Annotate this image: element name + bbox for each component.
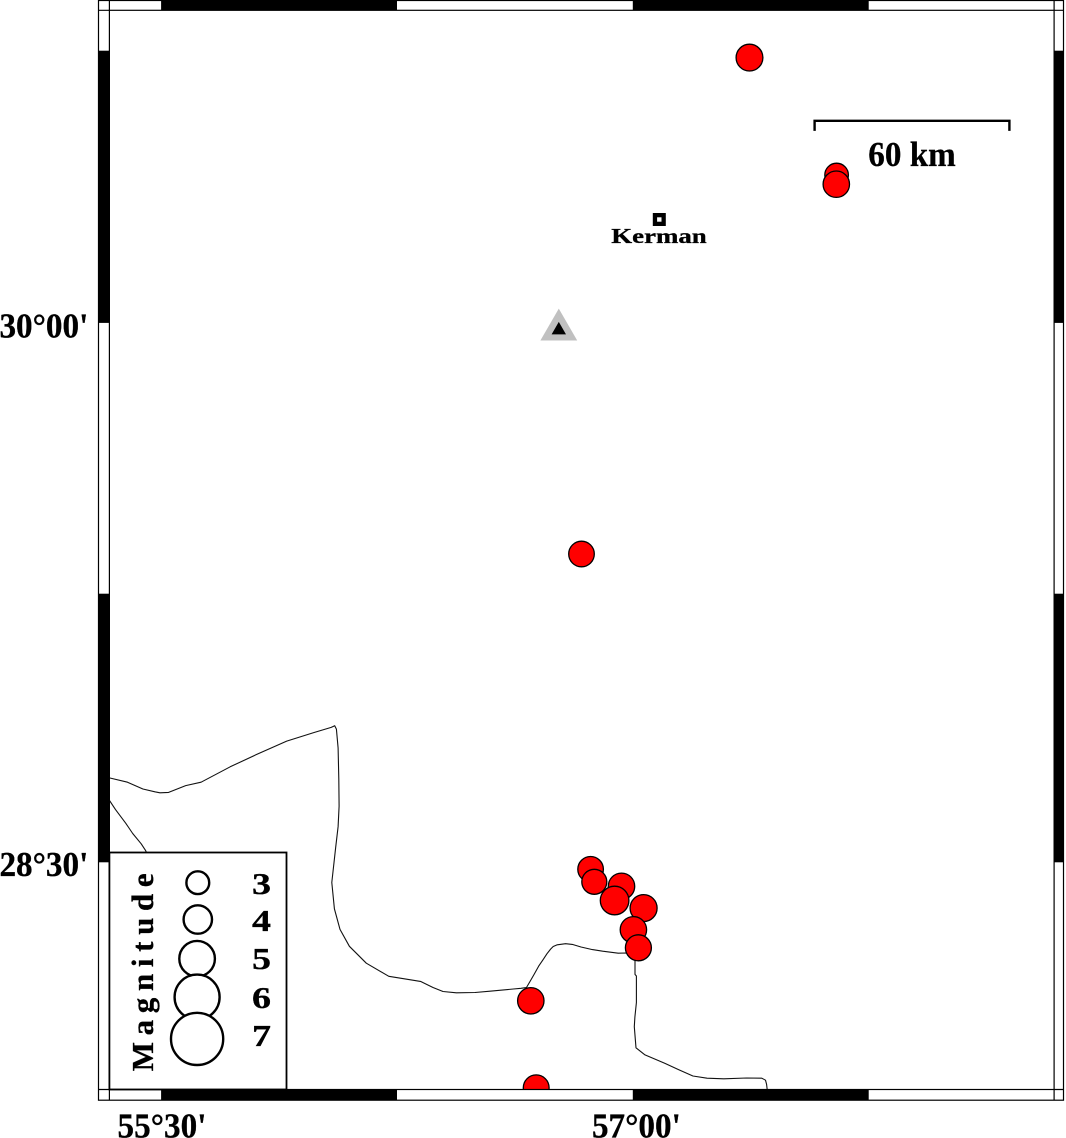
svg-text:3: 3: [252, 866, 271, 901]
svg-text:28°30': 28°30': [0, 845, 88, 884]
svg-text:6: 6: [252, 980, 271, 1015]
svg-text:7: 7: [252, 1018, 271, 1053]
svg-text:5: 5: [252, 941, 271, 976]
svg-text:55°30': 55°30': [118, 1106, 207, 1138]
svg-text:30°00': 30°00': [0, 306, 88, 345]
svg-text:4: 4: [252, 903, 271, 938]
svg-text:60 km: 60 km: [868, 135, 955, 174]
svg-text:Kerman: Kerman: [611, 224, 707, 248]
svg-text:57°00': 57°00': [592, 1106, 681, 1138]
